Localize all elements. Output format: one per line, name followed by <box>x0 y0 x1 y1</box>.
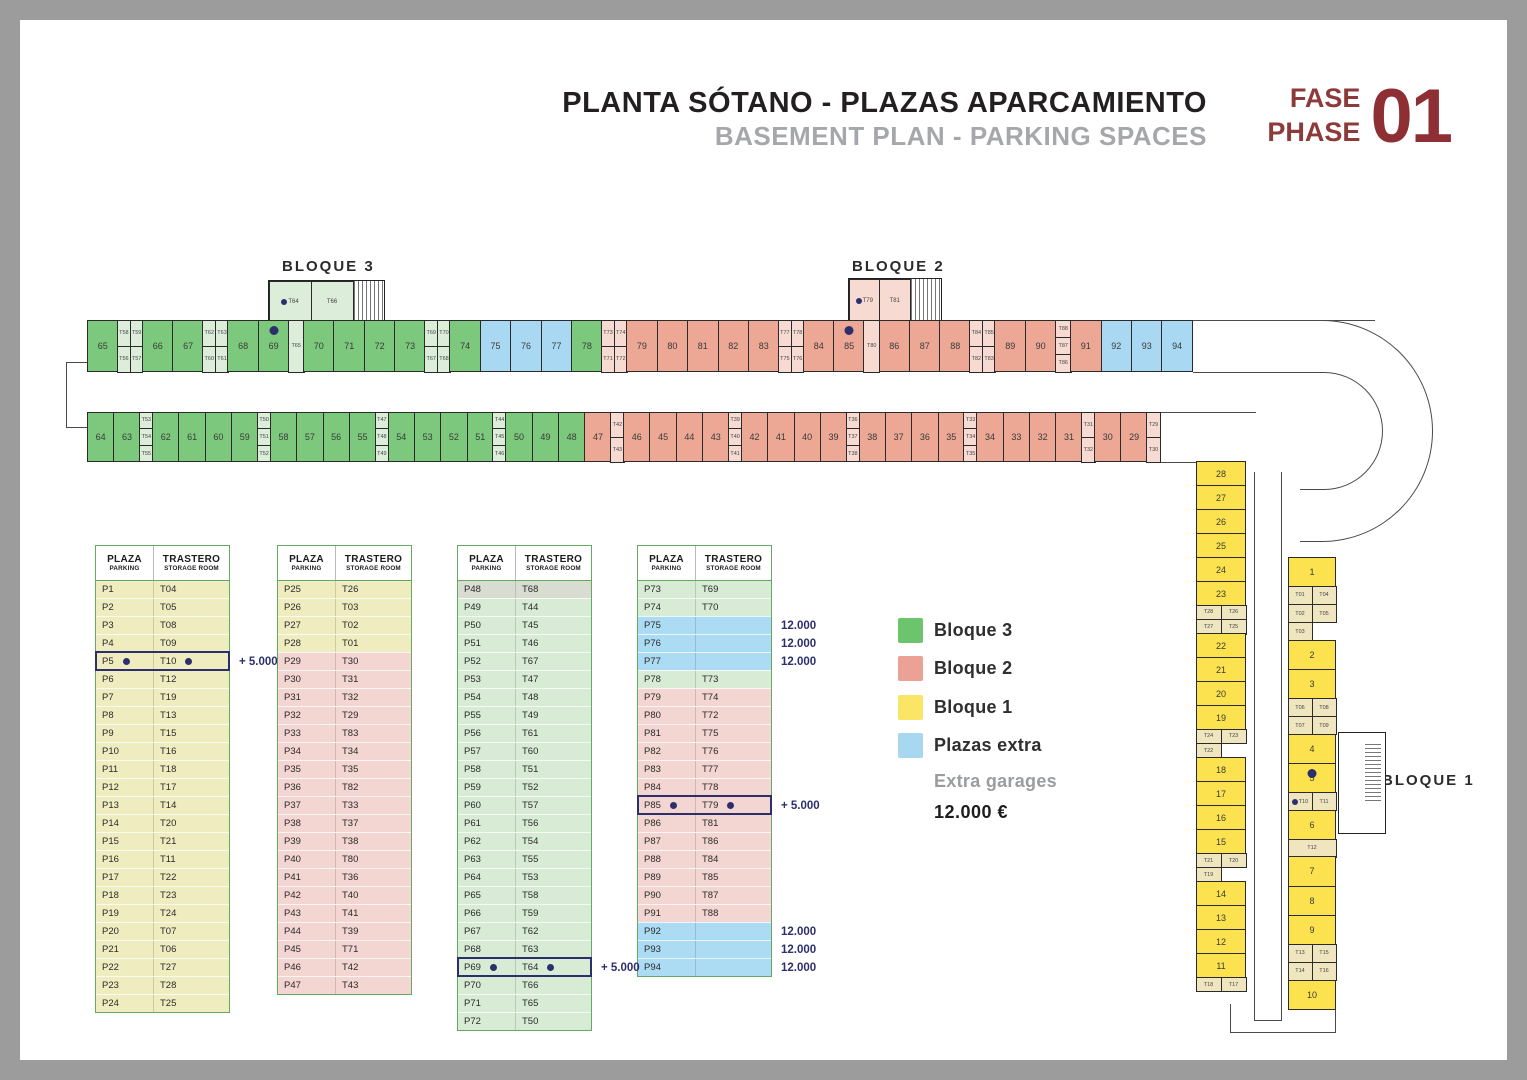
table-cell: P6 <box>96 671 154 688</box>
parking-stall-51: 51 <box>467 412 494 462</box>
parking-stall-88: 88 <box>939 320 970 372</box>
cell-text: T47 <box>522 674 538 685</box>
stall-number: 61 <box>187 432 197 442</box>
table-row-P28: P28T01 <box>278 634 411 652</box>
stall-number: 47 <box>593 432 603 442</box>
table-cell: T50 <box>516 1013 591 1030</box>
cell-text: P64 <box>464 872 481 883</box>
storage-room-label: T46 <box>495 451 504 457</box>
price-note: 12.000 <box>781 926 816 938</box>
cell-text: T71 <box>342 944 358 955</box>
stall-number: 13 <box>1216 913 1226 923</box>
table-row-P31: P31T32 <box>278 688 411 706</box>
cell-text: T69 <box>702 584 718 595</box>
storage-room-T65: T65 <box>288 320 305 373</box>
storage-room-T21: T21 <box>1196 853 1222 869</box>
parking-stall-24: 24 <box>1196 557 1246 582</box>
table-row-P70: P70T66 <box>458 976 591 994</box>
storage-room-T77: T77 <box>778 320 792 347</box>
stall-number: 84 <box>814 341 824 351</box>
parking-stall-36: 36 <box>911 412 938 462</box>
cell-text: P51 <box>464 638 481 649</box>
storage-room-label: T74 <box>616 330 625 336</box>
stall-number: 69 <box>269 341 279 351</box>
legend-label: Bloque 1 <box>934 697 1012 718</box>
parking-stall-16: 16 <box>1196 805 1246 830</box>
cell-text: P24 <box>102 998 119 1009</box>
storage-room-T04: T04 <box>1312 586 1337 605</box>
storage-room-label: T55 <box>142 451 151 457</box>
parking-stall-63: 63 <box>113 412 140 462</box>
table-cell: P30 <box>278 671 336 688</box>
table-row-P63: P63T55 <box>458 850 591 868</box>
stall-number: 38 <box>867 432 877 442</box>
cell-text: T41 <box>342 908 358 919</box>
storage-room-T58: T58 <box>117 320 131 347</box>
selected-marker-dot <box>727 802 734 809</box>
stall-number: 8 <box>1309 896 1314 906</box>
cell-text: P39 <box>284 836 301 847</box>
parking-stall-2: 2 <box>1288 640 1336 670</box>
stall-number: 56 <box>331 432 341 442</box>
parking-stall-69: 69 <box>258 320 289 372</box>
cell-text: P67 <box>464 926 481 937</box>
table-cell: T48 <box>516 689 591 706</box>
cell-text: P20 <box>102 926 119 937</box>
cell-text: T12 <box>160 674 176 685</box>
table-cell: T28 <box>154 977 229 994</box>
header-subtitle: STORAGE ROOM <box>526 565 581 572</box>
stall-number: 79 <box>637 341 647 351</box>
table-cell: T56 <box>516 815 591 832</box>
table-cell: T10 <box>154 653 229 670</box>
table-cell: T27 <box>154 959 229 976</box>
parking-stall-56: 56 <box>323 412 350 462</box>
parking-stall-73: 73 <box>394 320 425 372</box>
cell-text: T75 <box>702 728 718 739</box>
table-row-P20: P20T07 <box>96 922 229 940</box>
cell-text: P94 <box>644 962 661 973</box>
parking-column-right: 1T01T04T02T05T0323T06T08T07T0945T10T116T… <box>1288 558 1336 1010</box>
stall-number: 88 <box>950 341 960 351</box>
storage-room-label: T04 <box>1319 592 1328 598</box>
stall-number: 46 <box>632 432 642 442</box>
stall-number: 35 <box>946 432 956 442</box>
table-cell: P5 <box>96 653 154 670</box>
storage-room-label: T52 <box>259 451 268 457</box>
table-row-P36: P36T82 <box>278 778 411 796</box>
stall-number: 27 <box>1216 493 1226 503</box>
storage-room-T08: T08 <box>1312 698 1337 717</box>
table-row-P44: P44T39 <box>278 922 411 940</box>
table-cell: P93 <box>638 941 696 958</box>
storage-room-label: T82 <box>972 356 981 362</box>
storage-cluster: T12 <box>1288 839 1336 857</box>
stall-number: 17 <box>1216 789 1226 799</box>
header-title: PLAZA <box>469 554 504 565</box>
table-cell: T63 <box>516 941 591 958</box>
table-cell: T68 <box>516 581 591 598</box>
stall-number: 51 <box>475 432 485 442</box>
table-cell: P91 <box>638 905 696 922</box>
cell-text: T86 <box>702 836 718 847</box>
table-row-P59: P59T52 <box>458 778 591 796</box>
price-note: + 5.000 <box>781 800 820 812</box>
stall-number: 76 <box>521 341 531 351</box>
table-row-P68: P68T63 <box>458 940 591 958</box>
table-cell: T53 <box>516 869 591 886</box>
cell-text: P16 <box>102 854 119 865</box>
storage-room-T09: T09 <box>1312 716 1337 735</box>
storage-cluster: T44T45T46 <box>493 412 507 462</box>
storage-room-label: T24 <box>1204 733 1213 739</box>
storage-cluster: T06T08T07T09 <box>1288 699 1336 735</box>
table-cell: P64 <box>458 869 516 886</box>
legend-item: Plazas extra <box>898 733 1057 759</box>
cell-text: T29 <box>342 710 358 721</box>
table-cell: P63 <box>458 851 516 868</box>
parking-stall-94: 94 <box>1161 320 1192 372</box>
table-cell: T39 <box>336 923 411 940</box>
bloque-2-label: BLOQUE 2 <box>852 258 945 275</box>
parking-stall-52: 52 <box>440 412 467 462</box>
stall-number: 25 <box>1216 541 1226 551</box>
table-cell: T23 <box>154 887 229 904</box>
stall-number: 83 <box>759 341 769 351</box>
storage-room-label: T08 <box>1319 705 1328 711</box>
table-row-P3: P3T08 <box>96 616 229 634</box>
storage-room-label: T41 <box>730 451 739 457</box>
cell-text: P27 <box>284 620 301 631</box>
cell-text: P77 <box>644 656 661 667</box>
parking-stall-85: 85 <box>833 320 864 372</box>
table-cell: T85 <box>696 869 771 886</box>
table-cell: P79 <box>638 689 696 706</box>
cell-text: P30 <box>284 674 301 685</box>
cell-text: P32 <box>284 710 301 721</box>
storage-cluster: T42T43 <box>611 412 625 462</box>
cell-text: P73 <box>644 584 661 595</box>
table-row-P37: P37T33 <box>278 796 411 814</box>
table-cell: T43 <box>336 977 411 994</box>
storage-room-T13: T13 <box>1288 944 1313 963</box>
stairs-hatch <box>910 279 941 322</box>
parking-stall-35: 35 <box>938 412 965 462</box>
cell-text: T44 <box>522 602 538 613</box>
table-row-P91: P91T88 <box>638 904 771 922</box>
stall-number: 90 <box>1036 341 1046 351</box>
storage-room-label: T20 <box>1229 858 1238 864</box>
cell-text: P80 <box>644 710 661 721</box>
table-cell <box>696 959 771 976</box>
cell-text: T35 <box>342 764 358 775</box>
storage-cluster: T29T30 <box>1147 412 1161 462</box>
table-cell: P8 <box>96 707 154 724</box>
corridor-line <box>1160 462 1196 463</box>
cell-text: P40 <box>284 854 301 865</box>
table-row-P77: P7712.000 <box>638 652 771 670</box>
parking-strip-top: 65T58T59T56T576667T62T63T60T616869T65707… <box>88 320 1193 372</box>
table-cell: P51 <box>458 635 516 652</box>
cell-text: P89 <box>644 872 661 883</box>
cell-text: T42 <box>342 962 358 973</box>
storage-room-T02: T02 <box>1288 604 1313 623</box>
table-cell: T55 <box>516 851 591 868</box>
cell-text: T24 <box>160 908 176 919</box>
cell-text: T18 <box>160 764 176 775</box>
cell-text: T03 <box>342 602 358 613</box>
storage-room-T82: T82 <box>969 346 983 373</box>
stall-number: 66 <box>153 341 163 351</box>
storage-room-label: T36 <box>848 417 857 423</box>
cell-text: T08 <box>160 620 176 631</box>
storage-cluster: T28T26T27T25 <box>1196 605 1246 634</box>
table-cell: T69 <box>696 581 771 598</box>
table-row-P72: P72T50 <box>458 1012 591 1030</box>
legend-sub-label: Extra garages <box>934 771 1057 792</box>
table-cell: T65 <box>516 995 591 1012</box>
stair-core-bloque3: T64T66 <box>268 280 385 323</box>
storage-room-label: T19 <box>1204 872 1213 878</box>
parking-stall-91: 91 <box>1070 320 1101 372</box>
table-row-P50: P50T45 <box>458 616 591 634</box>
storage-room-T01: T01 <box>1288 586 1313 605</box>
parking-stall-28: 28 <box>1196 461 1246 486</box>
cell-text: P7 <box>102 692 114 703</box>
parking-stall-18: 18 <box>1196 757 1246 782</box>
table-cell: P61 <box>458 815 516 832</box>
table-cell: P18 <box>96 887 154 904</box>
cell-text: T56 <box>522 818 538 829</box>
table-cell: P66 <box>458 905 516 922</box>
stall-number: 52 <box>449 432 459 442</box>
legend-color-swatch <box>898 695 923 720</box>
cell-text: T28 <box>160 980 176 991</box>
table-cell: P36 <box>278 779 336 796</box>
storage-room-label: T22 <box>1204 748 1213 754</box>
table-cell <box>696 941 771 958</box>
table-cell: T34 <box>336 743 411 760</box>
table-cell <box>696 653 771 670</box>
table-cell: T26 <box>336 581 411 598</box>
cell-text: T09 <box>160 638 176 649</box>
storage-room-label: T01 <box>1295 592 1304 598</box>
legend-item: Bloque 3 <box>898 617 1057 643</box>
stairs-hatch <box>1365 741 1381 801</box>
cell-text: P4 <box>102 638 114 649</box>
table-cell: T41 <box>336 905 411 922</box>
table-cell: T33 <box>336 797 411 814</box>
table-cell: P80 <box>638 707 696 724</box>
table-row-P4: P4T09 <box>96 634 229 652</box>
storage-room-label: T56 <box>119 356 128 362</box>
storage-room-label: T48 <box>377 434 386 440</box>
parking-stall-58: 58 <box>270 412 297 462</box>
header-subtitle: PARKING <box>652 565 682 572</box>
table-cell: T29 <box>336 707 411 724</box>
storage-room-T16: T16 <box>1312 962 1337 981</box>
storage-room-label: T21 <box>1204 858 1213 864</box>
cell-text: T55 <box>522 854 538 865</box>
table-row-P33: P33T83 <box>278 724 411 742</box>
storage-room-label: T84 <box>972 330 981 336</box>
storage-room-label: T57 <box>132 356 141 362</box>
table-row-P17: P17T22 <box>96 868 229 886</box>
table-cell: T01 <box>336 635 411 652</box>
table-cell: P54 <box>458 689 516 706</box>
cell-text: P14 <box>102 818 119 829</box>
cell-text: P83 <box>644 764 661 775</box>
table-cell: P44 <box>278 923 336 940</box>
cell-text: T74 <box>702 692 718 703</box>
selected-marker-dot <box>1308 769 1317 778</box>
selected-marker-dot <box>670 802 677 809</box>
parking-stall-83: 83 <box>748 320 779 372</box>
table-cell: P55 <box>458 707 516 724</box>
cell-text: P82 <box>644 746 661 757</box>
storage-room-T26: T26 <box>1221 605 1247 621</box>
parking-stall-45: 45 <box>649 412 676 462</box>
stall-number: 85 <box>844 341 854 351</box>
cell-text: P59 <box>464 782 481 793</box>
table-cell: T45 <box>516 617 591 634</box>
cell-text: P11 <box>102 764 118 775</box>
table-cell: P9 <box>96 725 154 742</box>
stall-number: 15 <box>1216 837 1226 847</box>
parking-stall-31: 31 <box>1055 412 1082 462</box>
table-cell: P34 <box>278 743 336 760</box>
cell-text: T70 <box>702 602 718 613</box>
table-cell: T17 <box>154 779 229 796</box>
header-subtitle: PARKING <box>472 565 502 572</box>
stall-number: 86 <box>889 341 899 351</box>
table-row-P67: P67T62 <box>458 922 591 940</box>
stall-number: 64 <box>96 432 106 442</box>
parking-stall-9: 9 <box>1288 915 1336 945</box>
stall-number: 16 <box>1216 813 1226 823</box>
table-row-P21: P21T06 <box>96 940 229 958</box>
storage-room-label: T88 <box>1058 326 1067 332</box>
storage-cluster: T18T17 <box>1196 977 1246 992</box>
cell-text: T37 <box>342 818 358 829</box>
stall-number: 20 <box>1216 689 1226 699</box>
table-cell: T83 <box>336 725 411 742</box>
storage-room-label: T62 <box>205 330 214 336</box>
storage-room-label: T49 <box>377 451 386 457</box>
cell-text: P5 <box>102 656 114 667</box>
stall-number: 28 <box>1216 469 1226 479</box>
table-row-P39: P39T38 <box>278 832 411 850</box>
stall-number: 80 <box>667 341 677 351</box>
table-cell: T75 <box>696 725 771 742</box>
cell-text: T54 <box>522 836 538 847</box>
cell-text: P57 <box>464 746 481 757</box>
parking-stall-37: 37 <box>885 412 912 462</box>
parking-stall-11: 11 <box>1196 953 1246 978</box>
table-row-P74: P74T70 <box>638 598 771 616</box>
cell-text: P68 <box>464 944 481 955</box>
table-row-P60: P60T57 <box>458 796 591 814</box>
cell-text: T11 <box>160 854 176 865</box>
storage-cluster: T21T20T19 <box>1196 853 1246 882</box>
table-header-cell: PLAZAPARKING <box>458 546 516 580</box>
table-row-P23: P23T28 <box>96 976 229 994</box>
table-cell: P43 <box>278 905 336 922</box>
cell-text: T30 <box>342 656 358 667</box>
stall-number: 45 <box>658 432 668 442</box>
table-cell: T60 <box>516 743 591 760</box>
storage-room-T71: T71 <box>601 346 615 373</box>
stall-number: 44 <box>684 432 694 442</box>
storage-room-label: T18 <box>1204 982 1213 988</box>
parking-stall-40: 40 <box>794 412 821 462</box>
parking-stall-93: 93 <box>1131 320 1162 372</box>
cell-text: P52 <box>464 656 481 667</box>
cell-text: T51 <box>522 764 538 775</box>
storage-cluster: T88T87T86 <box>1055 320 1071 372</box>
stall-number: 31 <box>1064 432 1074 442</box>
storage-room-label: T68 <box>439 356 448 362</box>
storage-room-label: T15 <box>1319 950 1328 956</box>
legend: Bloque 3Bloque 2Bloque 1Plazas extra Ext… <box>898 617 1057 823</box>
cell-text: P21 <box>102 944 119 955</box>
table-row-P90: P90T87 <box>638 886 771 904</box>
storage-cluster: T77T78T75T76 <box>778 320 804 372</box>
stall-number: 40 <box>802 432 812 442</box>
cell-text: T21 <box>160 836 176 847</box>
cell-text: T60 <box>522 746 538 757</box>
cell-text: P66 <box>464 908 481 919</box>
table-cell <box>696 923 771 940</box>
storage-cluster: T47T48T49 <box>375 412 389 462</box>
stall-number: 6 <box>1309 820 1314 830</box>
stall-number: 91 <box>1081 341 1091 351</box>
parking-stall-12: 12 <box>1196 929 1246 954</box>
storage-room-T60: T60 <box>202 346 216 373</box>
stall-number: 18 <box>1216 765 1226 775</box>
storage-room-label: T44 <box>495 417 504 423</box>
corridor-line <box>1160 412 1256 413</box>
storage-room-label: T13 <box>1295 950 1304 956</box>
table-cell: T86 <box>696 833 771 850</box>
table-row-P30: P30T31 <box>278 670 411 688</box>
storage-room-label: T10 <box>1299 799 1308 805</box>
table-cell: P28 <box>278 635 336 652</box>
selected-marker-dot <box>547 964 554 971</box>
storage-room-T05: T05 <box>1312 604 1337 623</box>
selected-marker-dot <box>1292 799 1298 805</box>
table-cell: P4 <box>96 635 154 652</box>
stall-number: 68 <box>238 341 248 351</box>
table-cell: T20 <box>154 815 229 832</box>
table-cell: P82 <box>638 743 696 760</box>
table-cell <box>696 635 771 652</box>
cell-text: P88 <box>644 854 661 865</box>
stall-number: 72 <box>375 341 385 351</box>
table-header-cell: PLAZAPARKING <box>278 546 336 580</box>
cell-text: P60 <box>464 800 481 811</box>
header-title: PLAZA <box>289 554 324 565</box>
stall-number: 78 <box>582 341 592 351</box>
cell-text: P36 <box>284 782 301 793</box>
cell-text: T36 <box>342 872 358 883</box>
stall-number: 43 <box>711 432 721 442</box>
storage-room-label: T05 <box>1319 611 1328 617</box>
table-cell: T36 <box>336 869 411 886</box>
table-row-P58: P58T51 <box>458 760 591 778</box>
cell-text: T49 <box>522 710 538 721</box>
table-cell: P94 <box>638 959 696 976</box>
